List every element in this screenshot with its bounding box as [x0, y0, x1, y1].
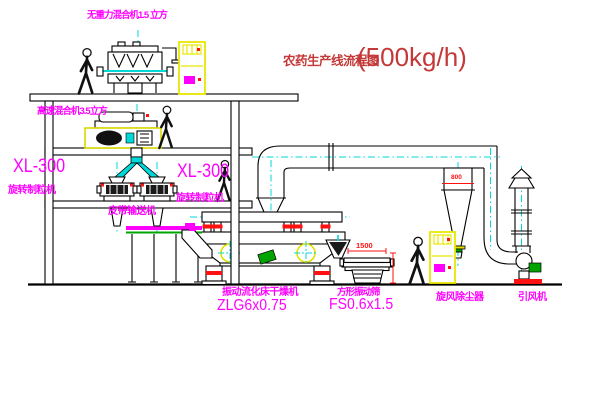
label-high-speed-mixer: 高速混合机3.5立方 [37, 107, 107, 117]
granulator-feed-chute-drawing [115, 157, 159, 177]
control-cabinet-top [179, 42, 205, 94]
worker-figure-second-floor [159, 106, 171, 148]
worker-figure-top-floor [79, 49, 92, 94]
rotary-granulator-right-drawing [137, 177, 177, 201]
dimension-sieve-length: 1500 [356, 242, 373, 250]
label-cyclone: 旋风除尘器 [436, 293, 484, 303]
label-gravityless-mixer: 无重力混合机1.5 立方 [87, 11, 167, 21]
label-granulator-center-name: 旋转制粒机 [176, 194, 224, 204]
belt-conveyor-drawing [126, 223, 212, 282]
control-cabinet-ground [430, 232, 455, 283]
label-dryer-model: ZLG6x0.75 [217, 298, 287, 314]
pesticide-line-flow-diagram: 农药生产线流程图 (500kg/h) 无重力混合机1.5 立方 高速混合机3.5… [0, 0, 600, 403]
label-granulator-center-model: XL-300 [177, 162, 229, 181]
label-fan: 引风机 [518, 293, 547, 303]
diagram-title-capacity: (500kg/h) [357, 44, 467, 70]
rotary-granulator-left-drawing [97, 177, 137, 201]
label-granulator-left-model: XL-300 [13, 157, 65, 176]
dimension-cyclone: 800 [451, 175, 462, 182]
label-belt-conveyor: 皮带输送机 [108, 207, 156, 217]
label-sieve-model: FS0.6x1.5 [329, 297, 393, 313]
induced-draft-fan-drawing [514, 246, 542, 284]
fluid-bed-dryer-drawing [195, 212, 345, 285]
label-granulator-left-name: 旋转制粒机 [8, 186, 56, 196]
exhaust-stack-drawing [509, 169, 534, 246]
worker-figure-ground [410, 237, 424, 284]
gravityless-mixer-drawing [97, 42, 180, 93]
